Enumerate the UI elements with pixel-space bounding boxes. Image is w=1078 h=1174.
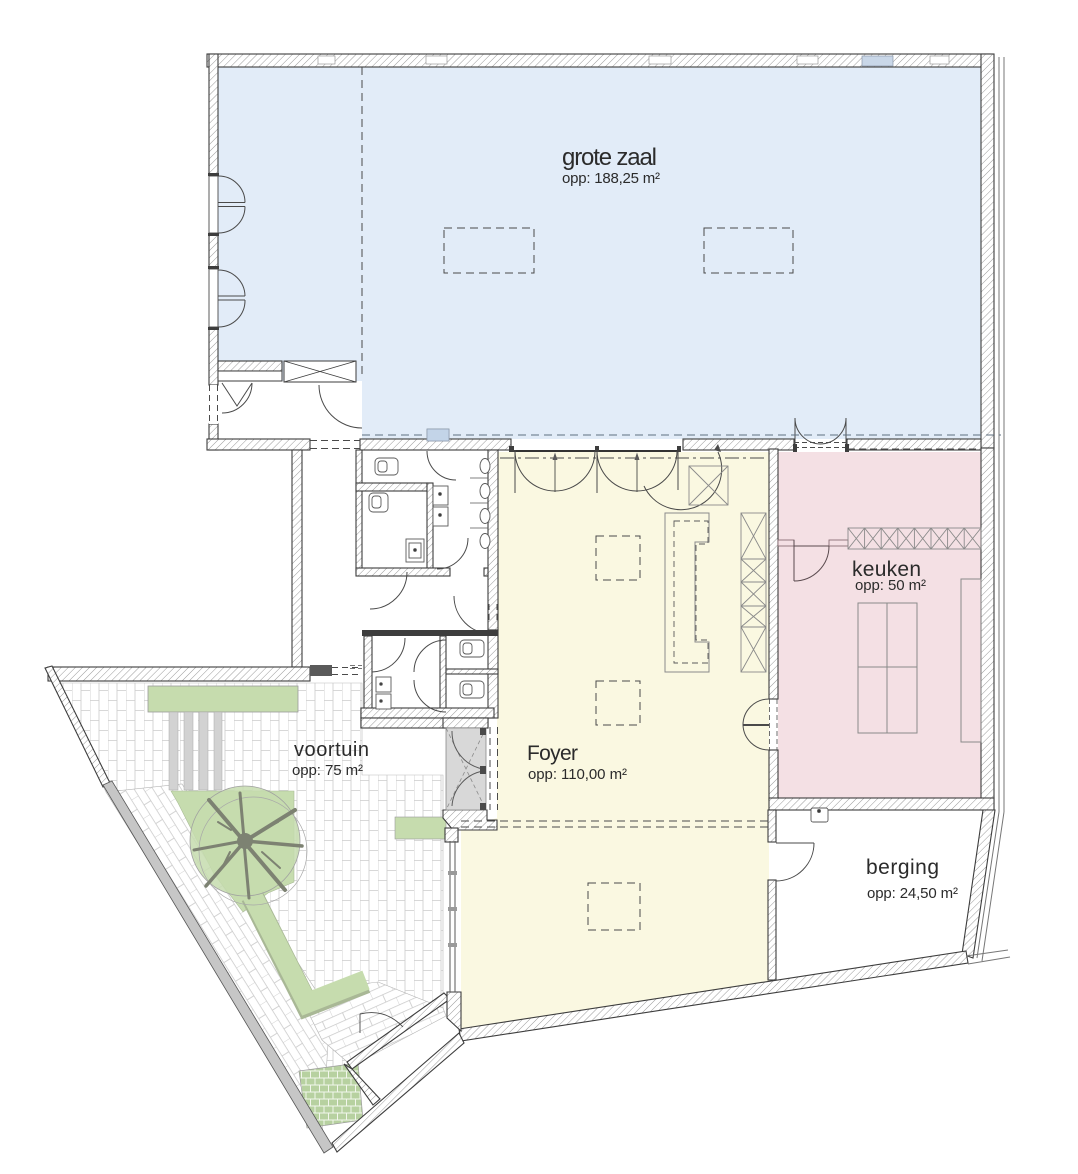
svg-text:voortuin: voortuin bbox=[294, 739, 369, 761]
svg-text:grote zaal: grote zaal bbox=[562, 144, 657, 171]
svg-text:opp: 188,25 m²: opp: 188,25 m² bbox=[562, 170, 660, 187]
svg-text:opp: 24,50 m²: opp: 24,50 m² bbox=[867, 885, 958, 902]
svg-text:opp: 50 m²: opp: 50 m² bbox=[855, 577, 926, 594]
svg-text:opp: 75 m²: opp: 75 m² bbox=[292, 762, 363, 779]
svg-text:opp: 110,00 m²: opp: 110,00 m² bbox=[528, 766, 627, 783]
svg-text:Foyer: Foyer bbox=[527, 742, 578, 765]
svg-text:berging: berging bbox=[866, 856, 939, 879]
